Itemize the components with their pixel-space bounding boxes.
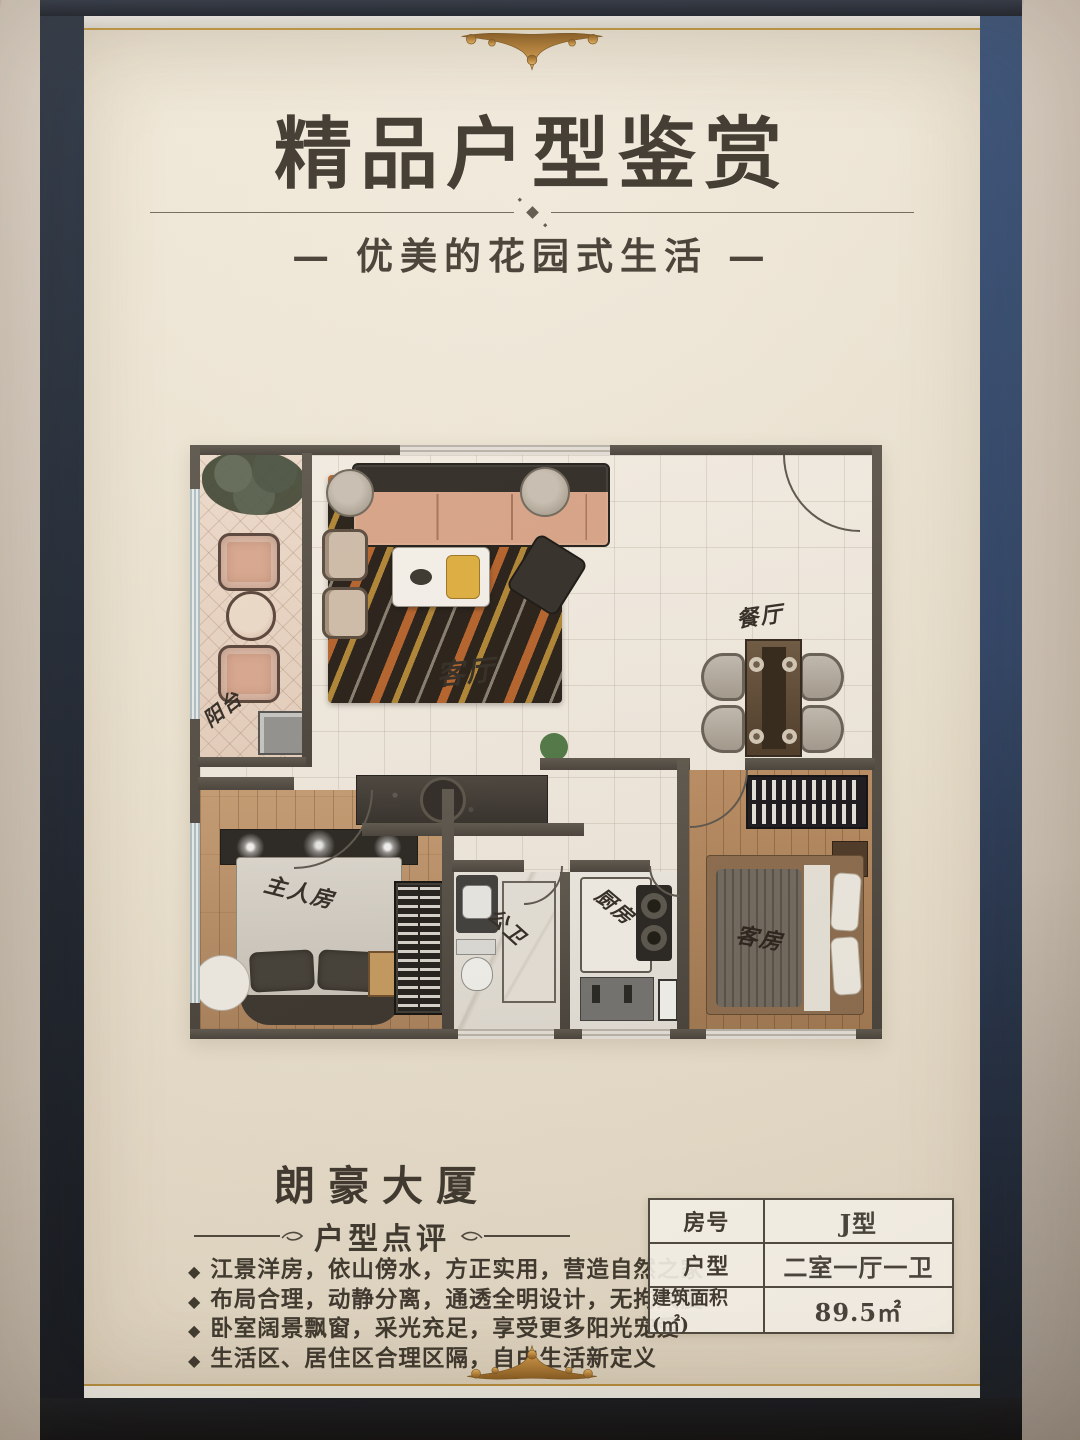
spec-table: 房号 J型 户型 二室一厅一卫 建筑面积(㎡) 89.5㎡ (648, 1198, 954, 1334)
gold-ornament-top-icon (456, 30, 608, 76)
diamond-bullet-icon: ◆ (188, 1351, 201, 1370)
table-row: 房号 J型 (650, 1200, 952, 1244)
floorplan: 阳台 客厅 餐厅 主人房 公卫 厨房 客房 (190, 445, 882, 1039)
heading-curl-left-icon (280, 1229, 304, 1243)
bathroom-door-arc (524, 866, 562, 904)
marble-wall-right (1022, 0, 1080, 1440)
frame-top (40, 0, 1022, 16)
frame-bottom (40, 1398, 1022, 1440)
gold-ornament-bottom-icon (462, 1338, 602, 1384)
guest-door-arc (690, 770, 747, 827)
poster-title: 精品户型鉴赏 (84, 92, 980, 204)
spec-value-room-no: J型 (765, 1200, 952, 1242)
master-door-arc (294, 790, 372, 868)
spec-value-area: 89.5㎡ (765, 1288, 952, 1332)
bullet-text: 布局合理，动静分离，通透全明设计，无拘尺度 (210, 1282, 704, 1314)
bullet-text: 卧室阔景飘窗，采光充足，享受更多阳光宠爱 (210, 1311, 680, 1343)
dining-door-arc (784, 455, 860, 531)
spec-label-layout: 户型 (650, 1244, 765, 1286)
label-living: 客厅 (434, 648, 498, 694)
review-bullet: ◆江景洋房，依山傍水，方正实用，营造自然之家 (188, 1252, 658, 1282)
frame-inner-edge-top (84, 16, 980, 30)
table-row: 户型 二室一厅一卫 (650, 1244, 952, 1288)
diamond-bullet-icon: ◆ (188, 1321, 201, 1340)
bullet-text: 江景洋房，依山傍水，方正实用，营造自然之家 (210, 1252, 704, 1284)
building-name: 朗豪大厦 (184, 1152, 580, 1212)
heading-line-left (194, 1235, 280, 1237)
divider-gem-icon (526, 206, 539, 219)
spec-label-area: 建筑面积(㎡) (650, 1288, 765, 1332)
kitchen-door-arc (650, 866, 680, 896)
diamond-bullet-icon: ◆ (188, 1292, 201, 1311)
photo-canvas: 精品户型鉴赏 — 优美的花园式生活 — (0, 0, 1080, 1440)
review-bullet: ◆卧室阔景飘窗，采光充足，享受更多阳光宠爱 (188, 1311, 658, 1341)
marble-wall-left (0, 0, 40, 1440)
spec-value-layout: 二室一厅一卫 (765, 1244, 952, 1286)
heading-curl-right-icon (460, 1229, 484, 1243)
table-row: 建筑面积(㎡) 89.5㎡ (650, 1288, 952, 1332)
heading-line-right (484, 1235, 570, 1237)
diamond-bullet-icon: ◆ (188, 1262, 201, 1281)
poster-subtitle: — 优美的花园式生活 — (84, 226, 980, 280)
poster: 精品户型鉴赏 — 优美的花园式生活 — (84, 30, 980, 1384)
frame-left (40, 0, 84, 1440)
review-bullet: ◆布局合理，动静分离，通透全明设计，无拘尺度 (188, 1282, 658, 1312)
frame-inner-edge-bottom (84, 1384, 980, 1398)
label-dining: 餐厅 (734, 596, 786, 634)
spec-label-room-no: 房号 (650, 1200, 765, 1242)
title-divider (150, 208, 914, 217)
frame-right (980, 0, 1022, 1440)
